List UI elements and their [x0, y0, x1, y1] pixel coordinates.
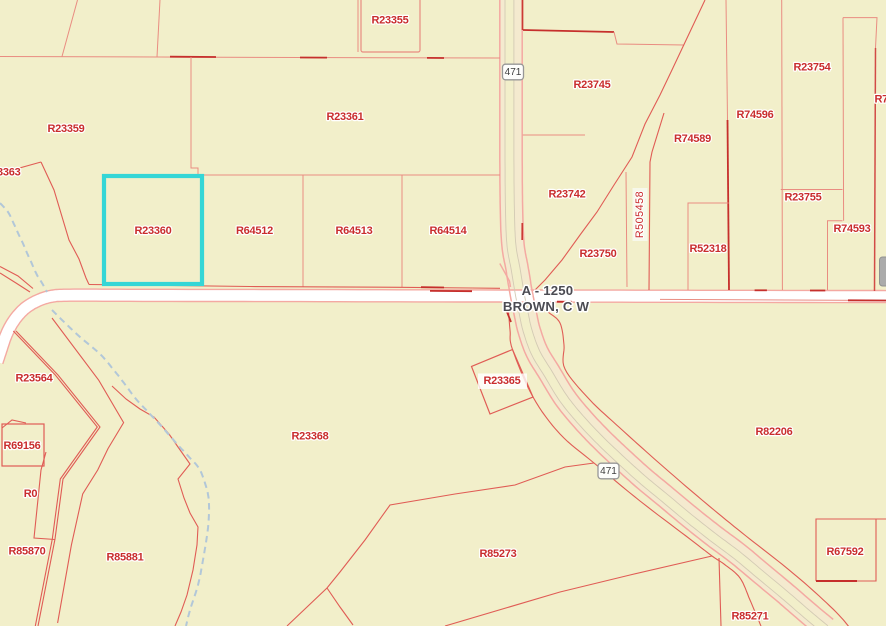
svg-text:R85881: R85881 [106, 552, 143, 564]
svg-text:R23363: R23363 [0, 167, 21, 179]
svg-text:471: 471 [505, 67, 522, 78]
svg-text:R85870: R85870 [8, 546, 45, 558]
svg-text:BROWN, C W: BROWN, C W [503, 299, 590, 314]
svg-text:R52318: R52318 [689, 243, 726, 255]
svg-text:R23361: R23361 [326, 111, 363, 123]
svg-text:R23754: R23754 [793, 62, 831, 74]
svg-text:R64512: R64512 [236, 225, 273, 237]
svg-text:R64513: R64513 [335, 225, 372, 237]
svg-text:R23742: R23742 [548, 189, 585, 201]
svg-text:R0: R0 [24, 488, 38, 500]
svg-text:R74594: R74594 [874, 94, 886, 106]
svg-text:R85271: R85271 [731, 611, 768, 623]
svg-text:R74589: R74589 [674, 133, 711, 145]
svg-text:R23355: R23355 [371, 15, 408, 27]
svg-text:A - 1250: A - 1250 [522, 283, 574, 298]
svg-text:R23750: R23750 [579, 248, 616, 260]
svg-text:R82206: R82206 [755, 426, 792, 438]
svg-text:471: 471 [600, 466, 617, 477]
svg-text:R74593: R74593 [833, 223, 870, 235]
svg-text:R23360: R23360 [134, 225, 171, 237]
svg-text:R67592: R67592 [826, 546, 863, 558]
svg-text:R64514: R64514 [429, 225, 467, 237]
svg-text:R23359: R23359 [47, 123, 84, 135]
svg-text:R23745: R23745 [573, 79, 610, 91]
svg-text:R23368: R23368 [291, 431, 328, 443]
svg-text:R23365: R23365 [483, 375, 520, 387]
svg-text:R23755: R23755 [784, 192, 821, 204]
svg-text:R23564: R23564 [15, 373, 53, 385]
svg-text:R69156: R69156 [3, 440, 40, 452]
svg-text:R505458: R505458 [634, 191, 646, 238]
svg-text:R74596: R74596 [736, 109, 773, 121]
svg-text:R85273: R85273 [479, 548, 516, 560]
